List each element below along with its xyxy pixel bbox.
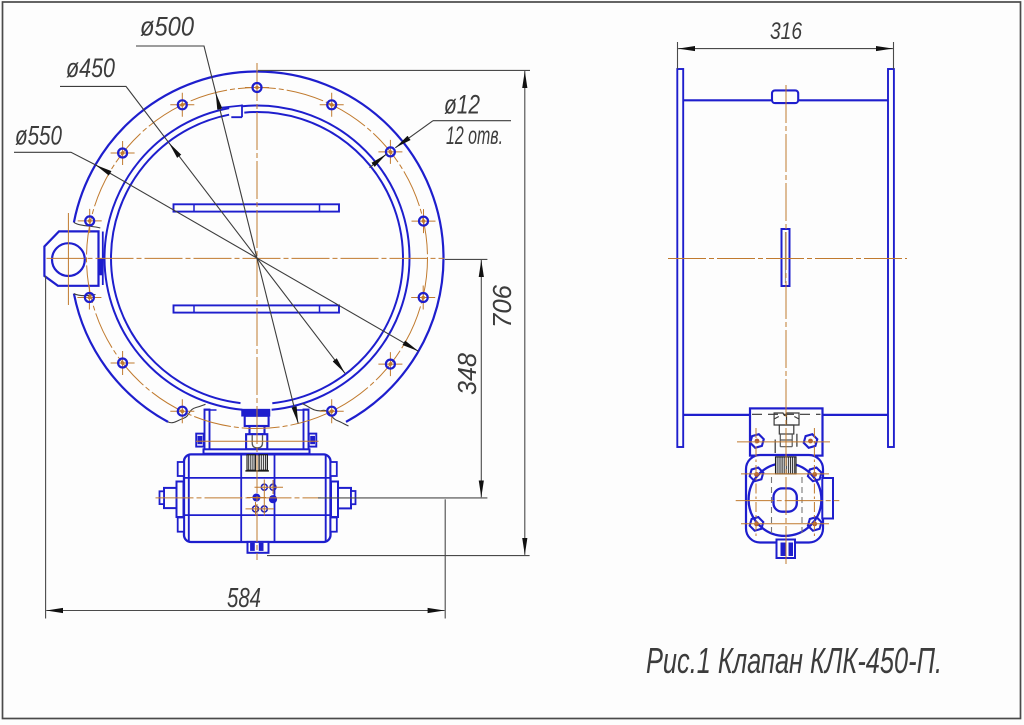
- svg-text:706: 706: [487, 284, 517, 328]
- svg-text:ø12: ø12: [444, 90, 480, 120]
- svg-text:12 отв.: 12 отв.: [446, 122, 503, 150]
- svg-text:316: 316: [770, 18, 803, 45]
- svg-text:348: 348: [452, 352, 482, 395]
- svg-text:ø450: ø450: [66, 53, 115, 83]
- svg-text:ø550: ø550: [15, 121, 62, 151]
- svg-text:Рис.1 Клапан КЛК-450-П.: Рис.1 Клапан КЛК-450-П.: [646, 640, 942, 681]
- svg-text:584: 584: [227, 582, 261, 613]
- svg-text:ø500: ø500: [140, 12, 194, 42]
